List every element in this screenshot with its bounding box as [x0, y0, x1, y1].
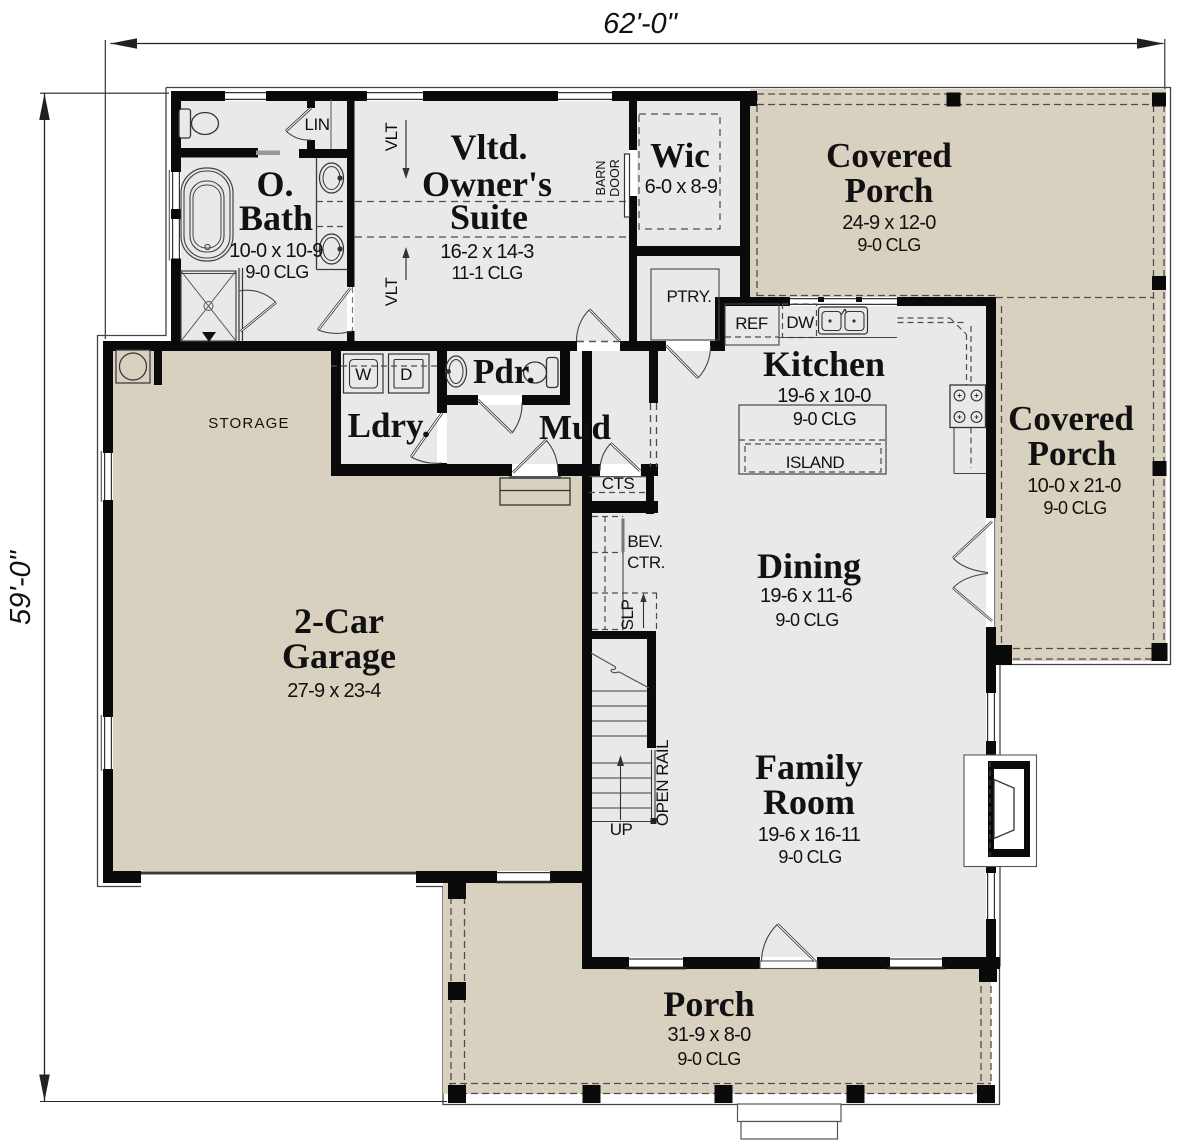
svg-text:PTRY.: PTRY. — [666, 287, 711, 306]
svg-text:Porch: Porch — [663, 984, 754, 1024]
svg-text:DOOR: DOOR — [608, 159, 622, 197]
svg-text:Room: Room — [763, 782, 855, 822]
svg-text:62'-0": 62'-0" — [603, 8, 679, 40]
svg-text:9-0 CLG: 9-0 CLG — [778, 847, 841, 867]
svg-text:W: W — [355, 365, 371, 384]
svg-text:27-9 x 23-4: 27-9 x 23-4 — [287, 680, 381, 702]
svg-text:10-0 x 10-9: 10-0 x 10-9 — [229, 240, 323, 262]
svg-text:BEV.: BEV. — [627, 532, 662, 551]
svg-text:59'-0": 59'-0" — [5, 549, 37, 625]
svg-text:10-0 x 21-0: 10-0 x 21-0 — [1027, 475, 1121, 497]
svg-text:D: D — [400, 365, 412, 384]
svg-text:Kitchen: Kitchen — [763, 344, 885, 384]
svg-text:Family: Family — [755, 747, 863, 787]
svg-text:Covered: Covered — [826, 136, 952, 175]
svg-text:VLT: VLT — [382, 123, 401, 152]
svg-text:CTS: CTS — [602, 474, 635, 493]
svg-text:Ldry.: Ldry. — [348, 406, 431, 445]
svg-text:Bath: Bath — [239, 198, 313, 238]
svg-text:Covered: Covered — [1008, 399, 1134, 438]
svg-text:STORAGE: STORAGE — [208, 415, 289, 432]
svg-text:9-0 CLG: 9-0 CLG — [1043, 498, 1106, 518]
svg-text:9-0 CLG: 9-0 CLG — [775, 610, 838, 630]
svg-text:9-0 CLG: 9-0 CLG — [245, 262, 308, 282]
svg-text:Wic: Wic — [650, 136, 710, 175]
svg-text:REF: REF — [735, 314, 768, 333]
svg-text:Pdr.: Pdr. — [473, 352, 535, 391]
svg-text:11-1 CLG: 11-1 CLG — [451, 263, 522, 283]
svg-text:19-6 x 10-0: 19-6 x 10-0 — [777, 385, 871, 407]
svg-text:CTR.: CTR. — [627, 553, 665, 572]
svg-text:Porch: Porch — [845, 171, 934, 210]
svg-text:9-0 CLG: 9-0 CLG — [677, 1049, 740, 1069]
svg-text:UP: UP — [610, 820, 633, 839]
svg-text:BARN: BARN — [594, 161, 608, 196]
svg-text:2-Car: 2-Car — [294, 601, 384, 641]
svg-text:19-6 x 16-11: 19-6 x 16-11 — [758, 824, 861, 846]
svg-text:Mud: Mud — [539, 408, 612, 447]
svg-text:6-0 x 8-9: 6-0 x 8-9 — [645, 176, 718, 198]
svg-text:24-9 x 12-0: 24-9 x 12-0 — [842, 212, 936, 234]
svg-text:OPEN RAIL: OPEN RAIL — [653, 740, 672, 826]
svg-text:VLT: VLT — [382, 278, 401, 307]
svg-text:Suite: Suite — [450, 197, 528, 237]
svg-text:Dining: Dining — [757, 546, 861, 586]
svg-text:9-0 CLG: 9-0 CLG — [857, 235, 920, 255]
svg-text:19-6 x 11-6: 19-6 x 11-6 — [760, 585, 853, 607]
svg-text:16-2 x 14-3: 16-2 x 14-3 — [440, 241, 534, 263]
svg-text:Vltd.: Vltd. — [450, 127, 527, 167]
svg-text:9-0 CLG: 9-0 CLG — [793, 409, 856, 429]
svg-text:31-9 x 8-0: 31-9 x 8-0 — [667, 1024, 751, 1046]
svg-text:DW: DW — [786, 313, 814, 332]
svg-text:LIN: LIN — [305, 115, 330, 134]
svg-text:Garage: Garage — [282, 636, 396, 676]
svg-text:SLP: SLP — [618, 600, 637, 631]
svg-text:Porch: Porch — [1028, 434, 1117, 473]
svg-text:ISLAND: ISLAND — [786, 453, 845, 472]
